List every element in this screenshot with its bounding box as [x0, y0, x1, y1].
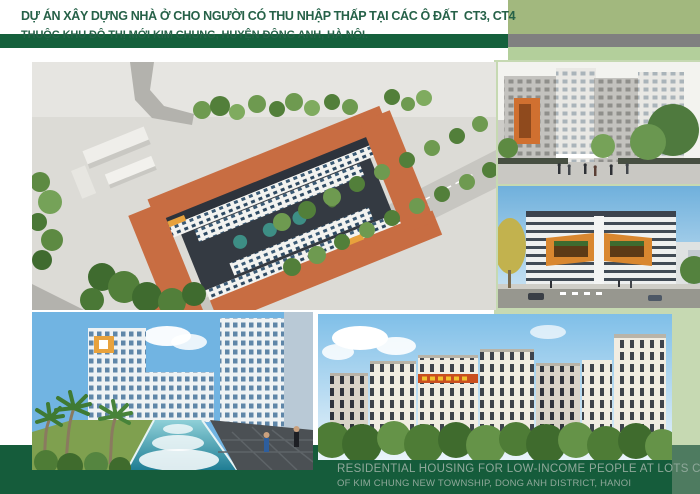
courtyard-pool-render — [32, 312, 313, 470]
header-gray-bar — [508, 34, 700, 47]
aerial-render-graphic — [32, 62, 496, 310]
street-level-towers-render — [498, 62, 700, 184]
title-vietnamese-line2: THUỘC KHU ĐÔ THỊ MỚI KIM CHUNG, HUYỆN ĐÔ… — [21, 28, 515, 42]
page-title: DỰ ÁN XÂY DỰNG NHÀ Ở CHO NGƯỜI CÓ THU NH… — [21, 8, 515, 42]
towers-render-graphic — [318, 314, 672, 460]
pool-render-graphic — [32, 312, 313, 470]
header-lightgreen-bar — [508, 47, 700, 60]
street-render-graphic — [498, 62, 700, 184]
orange-balcony-building-render — [498, 186, 700, 308]
footer-english-line1: RESIDENTIAL HOUSING FOR LOW-INCOME PEOPL… — [337, 463, 700, 476]
title-vietnamese-line1: DỰ ÁN XÂY DỰNG NHÀ Ở CHO NGƯỜI CÓ THU NH… — [21, 8, 515, 25]
project-poster: DỰ ÁN XÂY DỰNG NHÀ Ở CHO NGƯỜI CÓ THU NH… — [0, 0, 700, 494]
footer-caption: RESIDENTIAL HOUSING FOR LOW-INCOME PEOPL… — [337, 463, 700, 489]
footer-english-line2: OF KIM CHUNG NEW TOWNSHIP, DONG ANH DIST… — [337, 478, 700, 489]
header-sage-block — [508, 0, 700, 34]
balcony-render-graphic — [498, 186, 700, 308]
apartment-towers-row-render — [318, 314, 672, 460]
aerial-masterplan-render — [32, 62, 496, 310]
